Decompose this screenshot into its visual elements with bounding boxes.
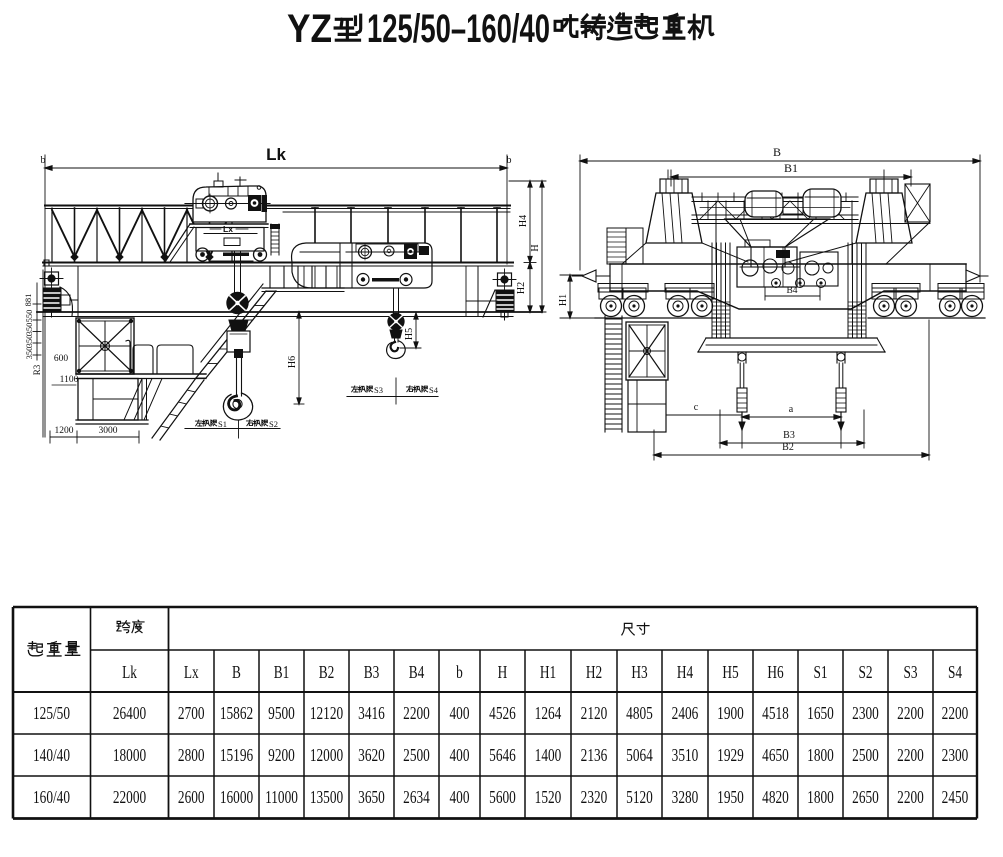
svg-text:3000: 3000 bbox=[99, 426, 118, 436]
svg-text:b: b bbox=[456, 663, 463, 682]
svg-text:350: 350 bbox=[24, 323, 34, 336]
svg-text:400: 400 bbox=[450, 788, 470, 807]
svg-text:2200: 2200 bbox=[897, 788, 924, 807]
svg-text:400: 400 bbox=[450, 746, 470, 765]
svg-text:2406: 2406 bbox=[672, 704, 699, 723]
svg-text:1520: 1520 bbox=[535, 788, 562, 807]
svg-text:H4: H4 bbox=[677, 663, 693, 682]
svg-text:Lx: Lx bbox=[184, 663, 199, 682]
svg-text:4820: 4820 bbox=[762, 788, 789, 807]
svg-text:S2: S2 bbox=[858, 663, 872, 682]
svg-text:400: 400 bbox=[450, 704, 470, 723]
svg-text:5120: 5120 bbox=[626, 788, 653, 807]
svg-text:1950: 1950 bbox=[717, 788, 744, 807]
svg-text:2500: 2500 bbox=[852, 746, 879, 765]
svg-text:3650: 3650 bbox=[358, 788, 385, 807]
svg-text:b: b bbox=[41, 155, 46, 166]
svg-text:1400: 1400 bbox=[535, 746, 562, 765]
svg-text:2600: 2600 bbox=[178, 788, 205, 807]
svg-text:Lk: Lk bbox=[122, 663, 137, 682]
svg-text:4526: 4526 bbox=[489, 704, 516, 723]
svg-text:2300: 2300 bbox=[942, 746, 969, 765]
svg-text:B3: B3 bbox=[364, 663, 380, 682]
svg-text:2200: 2200 bbox=[403, 704, 430, 723]
svg-text:H6: H6 bbox=[287, 356, 298, 368]
svg-text:S4: S4 bbox=[429, 385, 439, 395]
svg-text:S3: S3 bbox=[374, 385, 383, 395]
svg-text:4650: 4650 bbox=[762, 746, 789, 765]
svg-text:1200: 1200 bbox=[55, 426, 74, 436]
svg-text:B4: B4 bbox=[786, 286, 797, 296]
svg-text:S3: S3 bbox=[903, 663, 917, 682]
svg-text:2200: 2200 bbox=[897, 704, 924, 723]
svg-text:2634: 2634 bbox=[403, 788, 430, 807]
svg-text:B2: B2 bbox=[782, 442, 794, 453]
svg-text:16000: 16000 bbox=[220, 788, 253, 807]
svg-text:S1: S1 bbox=[218, 419, 227, 429]
svg-text:15196: 15196 bbox=[220, 746, 253, 765]
svg-text:350: 350 bbox=[24, 335, 34, 348]
svg-text:4805: 4805 bbox=[626, 704, 653, 723]
svg-text:H6: H6 bbox=[767, 663, 783, 682]
svg-text:12120: 12120 bbox=[310, 704, 343, 723]
svg-text:9500: 9500 bbox=[268, 704, 295, 723]
svg-text:2450: 2450 bbox=[942, 788, 969, 807]
svg-text:3280: 3280 bbox=[672, 788, 699, 807]
svg-text:B2: B2 bbox=[319, 663, 335, 682]
svg-text:2500: 2500 bbox=[403, 746, 430, 765]
svg-text:1650: 1650 bbox=[807, 704, 834, 723]
svg-text:550: 550 bbox=[24, 310, 34, 323]
svg-text:H: H bbox=[530, 244, 541, 251]
svg-text:12000: 12000 bbox=[310, 746, 343, 765]
svg-text:Lx: Lx bbox=[223, 224, 233, 234]
svg-text:125/50: 125/50 bbox=[33, 704, 70, 723]
svg-text:B: B bbox=[773, 145, 781, 159]
svg-text:1100: 1100 bbox=[60, 375, 79, 385]
svg-text:H2: H2 bbox=[516, 282, 527, 294]
svg-text:B1: B1 bbox=[784, 161, 798, 175]
svg-text:H: H bbox=[498, 663, 508, 682]
svg-text:18000: 18000 bbox=[113, 746, 146, 765]
svg-text:S4: S4 bbox=[948, 663, 962, 682]
svg-text:5064: 5064 bbox=[626, 746, 653, 765]
svg-text:160/40: 160/40 bbox=[33, 788, 70, 807]
svg-text:15862: 15862 bbox=[220, 704, 253, 723]
svg-text:H1: H1 bbox=[540, 663, 556, 682]
svg-text:R3: R3 bbox=[32, 364, 42, 375]
svg-text:2200: 2200 bbox=[897, 746, 924, 765]
svg-text:5600: 5600 bbox=[489, 788, 516, 807]
svg-text:S2: S2 bbox=[269, 419, 278, 429]
svg-text:13500: 13500 bbox=[310, 788, 343, 807]
svg-text:140/40: 140/40 bbox=[33, 746, 70, 765]
svg-text:1800: 1800 bbox=[807, 746, 834, 765]
svg-text:600: 600 bbox=[54, 354, 69, 364]
svg-text:2136: 2136 bbox=[581, 746, 608, 765]
svg-text:c: c bbox=[694, 402, 699, 413]
svg-text:3620: 3620 bbox=[358, 746, 385, 765]
svg-text:H5: H5 bbox=[404, 328, 415, 340]
svg-text:B: B bbox=[232, 663, 241, 682]
svg-text:11000: 11000 bbox=[265, 788, 298, 807]
svg-text:1900: 1900 bbox=[717, 704, 744, 723]
svg-text:2650: 2650 bbox=[852, 788, 879, 807]
svg-text:2300: 2300 bbox=[852, 704, 879, 723]
svg-text:H4: H4 bbox=[518, 215, 529, 227]
svg-text:3510: 3510 bbox=[672, 746, 699, 765]
svg-text:3416: 3416 bbox=[358, 704, 385, 723]
svg-text:350: 350 bbox=[24, 347, 34, 360]
svg-text:YZ: YZ bbox=[287, 7, 332, 51]
svg-text:H2: H2 bbox=[586, 663, 602, 682]
svg-text:2700: 2700 bbox=[178, 704, 205, 723]
svg-text:2200: 2200 bbox=[942, 704, 969, 723]
svg-text:b: b bbox=[507, 155, 512, 166]
svg-text:2800: 2800 bbox=[178, 746, 205, 765]
svg-text:Lk: Lk bbox=[266, 145, 286, 164]
svg-text:B1: B1 bbox=[274, 663, 290, 682]
svg-text:B4: B4 bbox=[409, 663, 425, 682]
svg-text:881: 881 bbox=[23, 294, 33, 307]
svg-text:1929: 1929 bbox=[717, 746, 744, 765]
svg-text:H5: H5 bbox=[722, 663, 738, 682]
svg-text:2320: 2320 bbox=[581, 788, 608, 807]
svg-text:B3: B3 bbox=[783, 430, 795, 441]
svg-text:H3: H3 bbox=[631, 663, 647, 682]
svg-text:1800: 1800 bbox=[807, 788, 834, 807]
svg-text:2120: 2120 bbox=[581, 704, 608, 723]
svg-text:4518: 4518 bbox=[762, 704, 789, 723]
svg-text:22000: 22000 bbox=[113, 788, 146, 807]
svg-text:S1: S1 bbox=[813, 663, 827, 682]
svg-text:H1: H1 bbox=[558, 294, 569, 306]
svg-text:125/50–160/40: 125/50–160/40 bbox=[367, 7, 550, 51]
svg-text:5646: 5646 bbox=[489, 746, 516, 765]
svg-text:9200: 9200 bbox=[268, 746, 295, 765]
svg-text:26400: 26400 bbox=[113, 704, 146, 723]
svg-text:a: a bbox=[789, 404, 794, 415]
svg-text:1264: 1264 bbox=[535, 704, 562, 723]
